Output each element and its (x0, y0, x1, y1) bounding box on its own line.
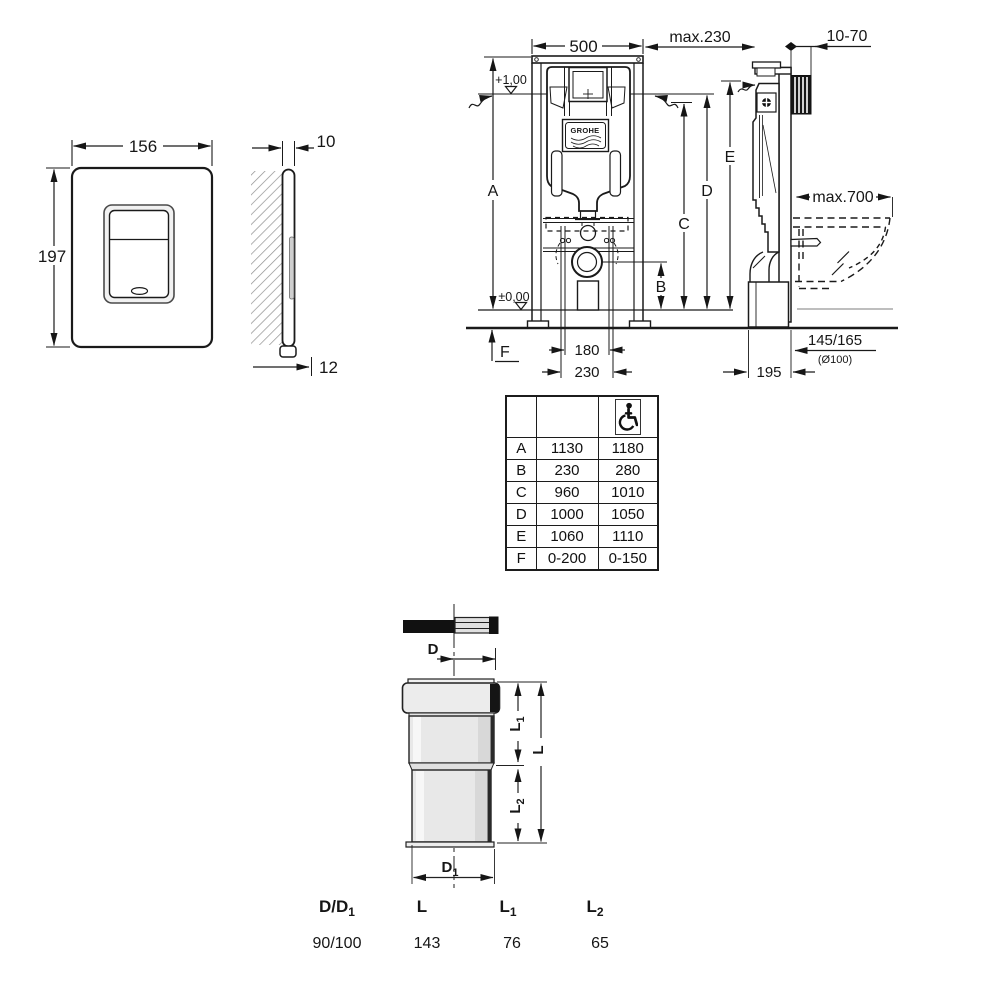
pipe-col4-header: L2 (586, 897, 603, 919)
table-header-row (506, 396, 658, 438)
plate-thickness-label: 10 (317, 132, 336, 151)
pipe-col4-value: 65 (591, 935, 609, 952)
table-row: F 0-200 0-150 (506, 548, 658, 571)
row-accessible-value: 1180 (598, 438, 658, 460)
pipe-col1-value: 90/100 (313, 935, 362, 952)
row-standard-value: 0-200 (536, 548, 598, 571)
table-row: E 1060 1110 (506, 526, 658, 548)
row-standard-value: 960 (536, 482, 598, 504)
frame-width-label: 500 (569, 37, 597, 56)
outlet-height-label: 145/165 (808, 332, 862, 349)
plate-height-label: 197 (38, 247, 66, 266)
header-accessible (598, 396, 658, 438)
table-row: B 230 280 (506, 460, 658, 482)
dim-f-label: F (500, 344, 510, 361)
row-accessible-value: 280 (598, 460, 658, 482)
plate-width-label: 156 (129, 137, 157, 156)
pipe-dim-d-label: D (428, 641, 439, 658)
row-standard-value: 1130 (536, 438, 598, 460)
pipe-col3-value: 76 (503, 935, 521, 952)
pipe-dimension-values: D/D1 L L1 L2 90/100 143 76 65 (313, 897, 609, 952)
dim-a-label: A (488, 183, 499, 200)
table-row: C 960 1010 (506, 482, 658, 504)
dim-d-label: D (701, 183, 713, 200)
row-key: E (506, 526, 536, 548)
header-standard (536, 396, 598, 438)
flush-plate-side-view: 10 12 (251, 132, 338, 377)
flush-plate-front-view: 156 197 (32, 137, 212, 347)
dimension-table: A 1130 1180 B 230 280 C 960 1010 D 1000 … (505, 395, 659, 571)
header-empty-key (506, 396, 536, 438)
pipe-col2-value: 143 (414, 935, 441, 952)
bolt-spacing-label: 180 (574, 342, 599, 359)
dim-b-label: B (656, 279, 667, 296)
pipe-col2-header: L (417, 897, 427, 916)
row-key: A (506, 438, 536, 460)
dim-c-label: C (678, 216, 690, 233)
row-accessible-value: 1010 (598, 482, 658, 504)
plate-depth-label: 12 (319, 358, 338, 377)
row-accessible-value: 0-150 (598, 548, 658, 571)
frame-front-view: GROHE 500 A B C D E (466, 37, 898, 381)
pipe-col1-header: D/D1 (319, 897, 355, 919)
table-row: A 1130 1180 (506, 438, 658, 460)
max-width-label: max.700 (812, 189, 873, 206)
wheelchair-icon (615, 399, 641, 435)
outlet-spacing-label: 230 (574, 364, 599, 381)
wall-hatch (251, 171, 282, 345)
row-standard-value: 1000 (536, 504, 598, 526)
wc-bowl-outline (793, 218, 890, 289)
row-accessible-value: 1110 (598, 526, 658, 548)
technical-drawing: 156 197 10 12 GROHE (0, 0, 1000, 1000)
grohe-logo: GROHE (570, 126, 599, 135)
table-row: D 1000 1050 (506, 504, 658, 526)
row-accessible-value: 1050 (598, 504, 658, 526)
row-standard-value: 1060 (536, 526, 598, 548)
pipe-col3-header: L1 (499, 897, 516, 919)
discharge-pipe-drawing: D L1 L L2 D1 (403, 604, 549, 888)
row-key: C (506, 482, 536, 504)
dim-e-label: E (725, 149, 736, 166)
row-key: D (506, 504, 536, 526)
row-key: F (506, 548, 536, 571)
pipe-dim-l-label: L (530, 745, 547, 754)
wall-section (791, 76, 811, 115)
max-depth-label: max.230 (669, 29, 730, 46)
level-top-label: +1,00 (495, 73, 527, 87)
installation-drawing-page: 156 197 10 12 GROHE (0, 0, 1000, 1000)
outlet-diameter-label: (Ø100) (818, 354, 852, 366)
row-standard-value: 230 (536, 460, 598, 482)
frame-depth-label: 195 (756, 364, 781, 381)
pipe-dim-d1-label: D1 (442, 859, 459, 879)
wall-thickness-label: 10-70 (827, 28, 868, 45)
row-key: B (506, 460, 536, 482)
